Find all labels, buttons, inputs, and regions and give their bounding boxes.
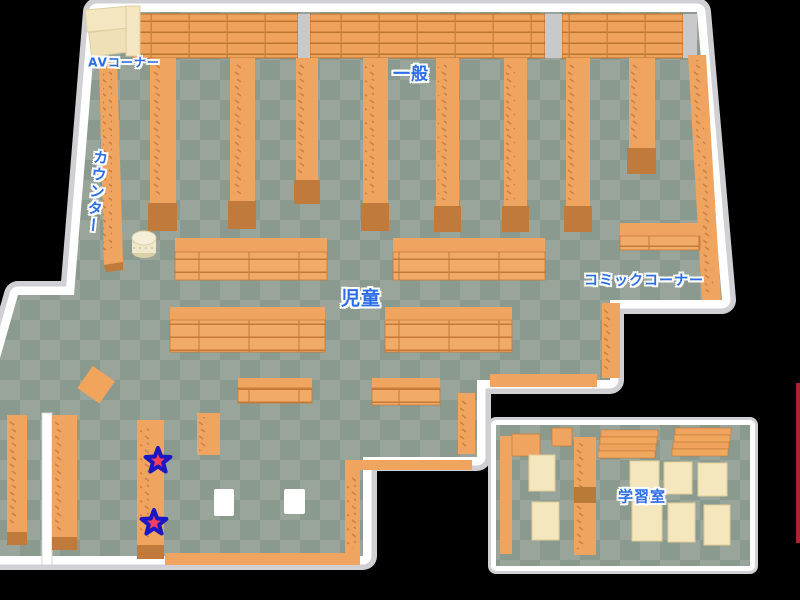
- white-box-terminal: [284, 489, 305, 514]
- white-box-terminal: [214, 489, 234, 516]
- bookshelf-row: [502, 58, 529, 232]
- low-bench: [238, 378, 312, 403]
- bookshelf-row: [361, 58, 389, 231]
- bookshelf-row: [564, 58, 592, 232]
- bookshelf-column: [7, 415, 27, 545]
- wall-shelf: [602, 303, 620, 378]
- wall-gap: [545, 14, 562, 58]
- top-wall-bookshelves: [133, 14, 697, 58]
- area-label-av-corner: AVコーナー: [88, 54, 160, 71]
- bookshelf-row: [627, 58, 656, 174]
- low-bench: [372, 378, 440, 405]
- bookshelf-column: [52, 415, 77, 550]
- study-divider-shelf: [574, 437, 596, 555]
- study-table: [664, 462, 692, 494]
- study-table: [529, 455, 555, 491]
- wall-shelf: [490, 374, 597, 387]
- area-label-children: 児童: [341, 284, 381, 311]
- bookshelf-column: [197, 413, 220, 455]
- bookshelf-row: [228, 58, 256, 229]
- bookshelf-row: [148, 58, 177, 231]
- area-label-comic-corner: コミックコーナー: [584, 270, 704, 290]
- area-label-study-room: 学習室: [618, 486, 666, 507]
- starred-bookshelf-column: [137, 420, 164, 559]
- area-label-general: 一般: [393, 60, 429, 85]
- av-corner-booths: [85, 6, 140, 56]
- low-shelf: [170, 307, 325, 352]
- study-top-shelf: [672, 428, 731, 456]
- low-shelf: [175, 238, 327, 280]
- right-edge-line: [796, 383, 800, 543]
- low-shelf: [393, 238, 545, 280]
- bookshelf-row: [294, 58, 320, 204]
- divider-wall: [42, 413, 52, 565]
- study-table: [704, 505, 730, 545]
- bookshelf-row: [434, 58, 461, 232]
- wall-gap: [298, 14, 310, 58]
- study-table: [532, 502, 559, 540]
- study-top-shelf: [598, 430, 658, 458]
- low-shelf: [385, 307, 512, 352]
- floor-map-svg: [0, 0, 800, 600]
- wall-shelf: [458, 393, 475, 454]
- round-shelf-cylinder: [132, 231, 156, 258]
- study-table: [698, 463, 727, 496]
- study-table: [632, 501, 662, 541]
- library-floor-map: AVコーナー 一般 カウンター 児童 コミックコーナー 学習室: [0, 0, 800, 600]
- study-table: [668, 503, 695, 542]
- wall-gap: [683, 14, 697, 58]
- low-shelf: [620, 223, 700, 250]
